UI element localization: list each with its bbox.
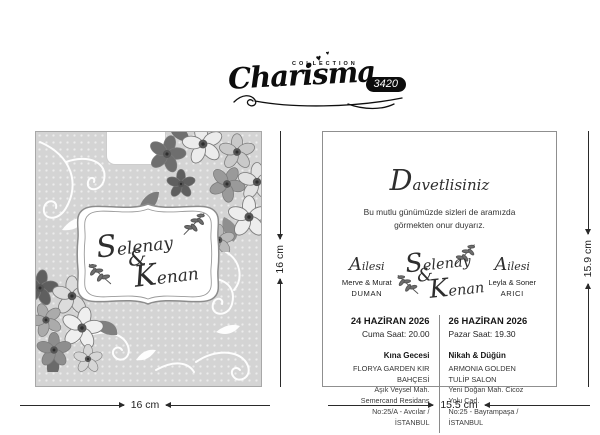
family-left: Ailesi Merve & Murat DUMAN — [339, 241, 395, 298]
dimension-inner-height: 15.9 cm — [580, 131, 596, 387]
names-plaque: Selenay & Kenan — [72, 200, 224, 308]
dimension-line — [280, 131, 281, 239]
couple-second-name: Kenan — [427, 268, 485, 304]
dimension-front-height: 16 cm — [272, 131, 288, 387]
family-surname: ARICI — [484, 289, 540, 298]
heart-icon: ♥ — [315, 54, 322, 64]
front-cover-panel: Selenay & Kenan — [35, 131, 262, 387]
family-label: Ailesi — [349, 255, 384, 275]
greeting-text: Davetlisiniz — [390, 164, 490, 197]
model-number-badge: 3420 — [366, 77, 406, 92]
dimension-line — [20, 405, 124, 406]
dimension-label: 16 cm — [274, 245, 286, 274]
dimension-inner-width: 15.5 cm — [328, 398, 590, 412]
couple-names: Selenay & Kenan — [395, 241, 485, 307]
dimension-line — [328, 405, 433, 406]
event-date: 26 HAZİRAN 2026 — [449, 315, 535, 326]
dimension-label: 16 cm — [131, 399, 160, 411]
family-right: Ailesi Leyla & Soner ARICI — [484, 241, 540, 298]
family-label: Ailesi — [494, 255, 529, 275]
event-title: Nikah & Düğün — [449, 351, 535, 360]
family-parents: Merve & Murat — [339, 278, 395, 287]
brand-logo: Charisma COLLECTION ♥ ♥ 3420 — [228, 58, 406, 112]
dimension-line — [166, 405, 270, 406]
inner-card-panel: Davetlisiniz Bu mutlu günümüzde sizleri … — [322, 131, 557, 387]
event-kina: 24 HAZİRAN 2026 Cuma Saat: 20.00 Kına Ge… — [336, 315, 440, 432]
dimension-line — [280, 279, 281, 387]
dimension-label: 15.9 cm — [582, 240, 594, 277]
family-surname: DUMAN — [339, 289, 395, 298]
event-venue: FLORYA GARDEN KIR BAHÇESİ — [345, 363, 430, 385]
invitation-message: Bu mutlu günümüzde sizleri de aramızda g… — [336, 206, 543, 231]
family-parents: Leyla & Soner — [484, 278, 540, 287]
dimension-line — [588, 284, 589, 387]
heart-icon: ♥ — [325, 51, 330, 58]
event-time: Cuma Saat: 20.00 — [345, 329, 430, 339]
message-line-2: görmekten onur duyarız. — [394, 220, 485, 230]
dimension-label: 15.5 cm — [440, 399, 477, 411]
event-venue: ARMONIA GOLDEN TULİP SALON — [449, 363, 535, 385]
events-section: 24 HAZİRAN 2026 Cuma Saat: 20.00 Kına Ge… — [336, 315, 543, 432]
collection-label: COLLECTION — [292, 61, 358, 67]
families-row: Ailesi Merve & Murat DUMAN Selenay & Ken… — [336, 241, 543, 309]
logo-flourish-icon — [230, 92, 406, 110]
event-time: Pazar Saat: 19.30 — [449, 329, 535, 339]
event-date: 24 HAZİRAN 2026 — [345, 315, 430, 326]
event-dugun: 26 HAZİRAN 2026 Pazar Saat: 19.30 Nikah … — [440, 315, 544, 432]
dimension-line — [588, 131, 589, 234]
event-title: Kına Gecesi — [345, 351, 430, 360]
dimension-line — [485, 405, 590, 406]
message-line-1: Bu mutlu günümüzde sizleri de aramızda — [364, 207, 516, 217]
dimension-front-width: 16 cm — [20, 398, 270, 412]
